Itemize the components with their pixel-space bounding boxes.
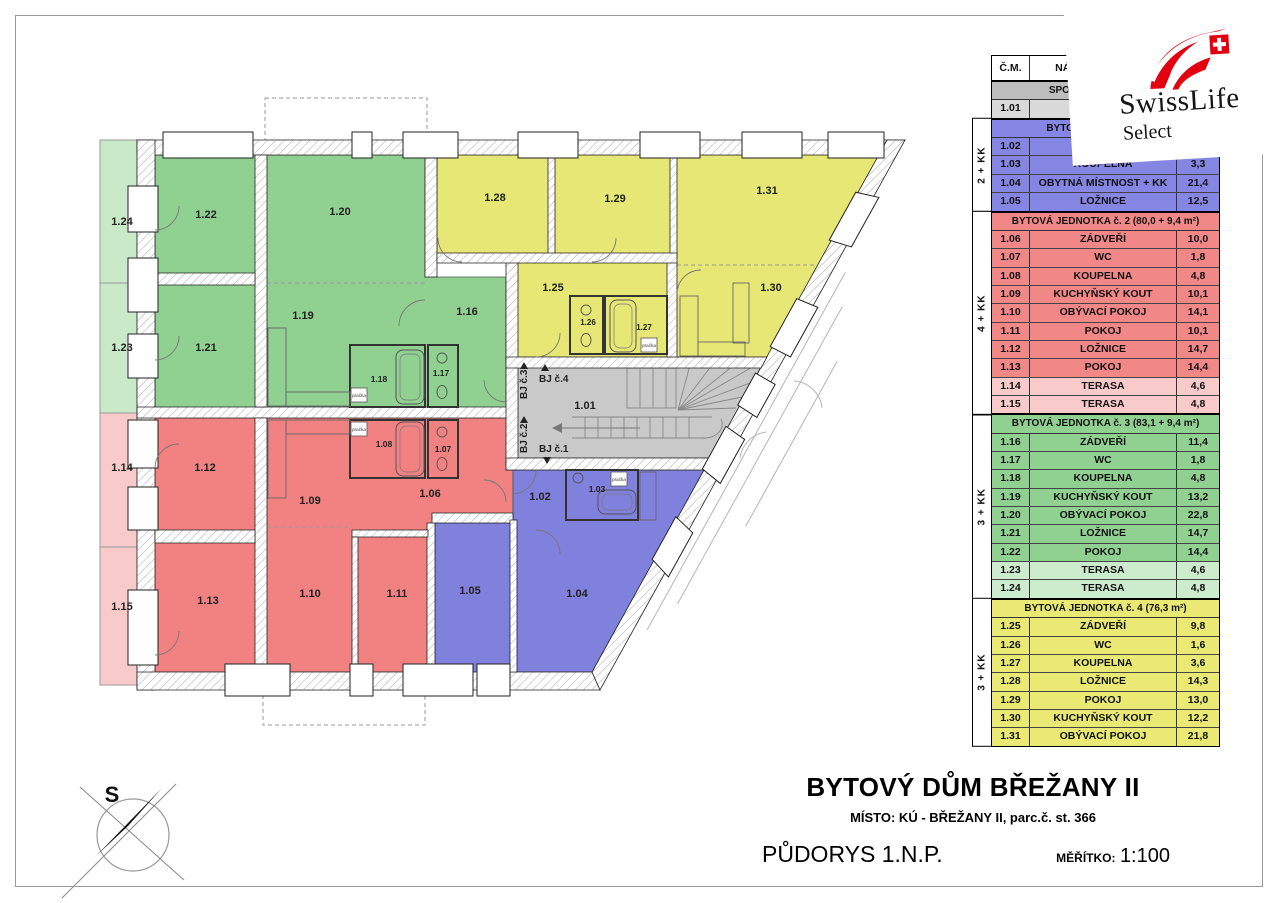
entrance-label-bj4: BJ č.4: [539, 374, 569, 385]
wall: [137, 407, 513, 418]
room-number: 1.25: [992, 618, 1029, 635]
legend-row-1.17: 1.17WC1,8: [992, 452, 1219, 470]
room-name: LOŽNICE: [1029, 193, 1177, 210]
room-number: 1.18: [992, 470, 1029, 487]
legend-section-unit-3: 3 + KKBYTOVÁ JEDNOTKA č. 3 (83,1 + 9,4 m…: [991, 414, 1220, 598]
legend-row-1.08: 1.08KOUPELNA4,8: [992, 268, 1219, 286]
room-number: 1.01: [992, 100, 1029, 117]
room-name: KUCHYŇSKÝ KOUT: [1029, 710, 1177, 727]
legend-col-cm: Č.M.: [992, 56, 1029, 80]
room-area: 14,7: [1177, 525, 1219, 542]
room-name: LOŽNICE: [1029, 525, 1177, 542]
room-name: POKOJ: [1029, 359, 1177, 376]
window-opening: [128, 420, 158, 468]
room-number: 1.29: [992, 692, 1029, 709]
room-number: 1.24: [992, 580, 1029, 597]
room-area: 21,4: [1177, 175, 1219, 192]
window-opening: [640, 132, 700, 158]
wall: [506, 458, 714, 470]
wall: [155, 530, 255, 543]
title-block: BYTOVÝ DŮM BŘEŽANY II MÍSTO: KÚ - BŘEŽAN…: [748, 772, 1198, 868]
wall: [510, 520, 517, 672]
room-number: 1.13: [992, 359, 1029, 376]
room-label-1.29: 1.29: [604, 193, 625, 205]
room-area: 1,6: [1177, 637, 1219, 654]
wall: [352, 537, 358, 672]
legend-row-1.05: 1.05LOŽNICE12,5: [992, 193, 1219, 210]
room-label-1.11: 1.11: [387, 588, 408, 600]
room-area: 4,8: [1177, 580, 1219, 597]
drawing-sheet: pračkapračkapračkapračka 1.011.021.031.0…: [0, 0, 1279, 903]
room-label-1.30: 1.30: [760, 282, 781, 294]
room-label-1.08: 1.08: [376, 439, 393, 449]
legend-row-1.25: 1.25ZÁDVEŘÍ9,8: [992, 618, 1219, 636]
room-label-1.01: 1.01: [574, 400, 595, 412]
scale-label: MĚŘÍTKO:: [1056, 851, 1115, 865]
washer-label: pračka: [352, 427, 366, 432]
room-area: 14,1: [1177, 304, 1219, 321]
room-area: 4,8: [1177, 396, 1219, 413]
entrance-label-bj3: BJ č.3: [519, 369, 530, 399]
room-area: 4,6: [1177, 378, 1219, 395]
room-label-1.13: 1.13: [197, 595, 218, 607]
legend-row-1.04: 1.04OBYTNÁ MÍSTNOST + KK21,4: [992, 175, 1219, 193]
room-name: POKOJ: [1029, 692, 1177, 709]
window-opening: [403, 664, 473, 696]
room-label-1.31: 1.31: [756, 185, 777, 197]
window-opening: [163, 132, 253, 158]
room-number: 1.20: [992, 507, 1029, 524]
legend-row-1.18: 1.18KOUPELNA4,8: [992, 470, 1219, 488]
legend-side-unit-3: 3 + KK: [972, 414, 992, 599]
legend-section-unit-2: 4 + KKBYTOVÁ JEDNOTKA č. 2 (80,0 + 9,4 m…: [991, 212, 1220, 415]
room-area: 4,6: [1177, 562, 1219, 579]
room-name: KOUPELNA: [1029, 470, 1177, 487]
legend-row-1.10: 1.10OBÝVACÍ POKOJ14,1: [992, 304, 1219, 322]
legend-row-1.19: 1.19KUCHYŇSKÝ KOUT13,2: [992, 489, 1219, 507]
wall: [432, 513, 513, 523]
room-number: 1.21: [992, 525, 1029, 542]
exterior-door-arc: [794, 381, 822, 408]
legend-row-1.16: 1.16ZÁDVEŘÍ11,4: [992, 434, 1219, 452]
room-label-1.24: 1.24: [111, 216, 133, 228]
legend-row-1.27: 1.27KOUPELNA3,6: [992, 655, 1219, 673]
room-number: 1.05: [992, 193, 1029, 210]
washer-label: pračka: [642, 343, 656, 348]
legend-row-1.21: 1.21LOŽNICE14,7: [992, 525, 1219, 543]
room-number: 1.22: [992, 544, 1029, 561]
room-label-1.27: 1.27: [636, 323, 652, 332]
room-label-1.19: 1.19: [292, 310, 313, 322]
legend-side-unit-1: 2 + KK: [972, 118, 992, 212]
room-number: 1.04: [992, 175, 1029, 192]
wall: [437, 253, 677, 263]
room-label-1.21: 1.21: [195, 342, 216, 354]
wall: [255, 418, 267, 672]
legend-section-title: BYTOVÁ JEDNOTKA č. 4 (76,3 m²): [992, 600, 1219, 618]
room-label-1.02: 1.02: [529, 491, 550, 503]
room-area: 9,8: [1177, 618, 1219, 635]
room-number: 1.09: [992, 286, 1029, 303]
legend-row-1.30: 1.30KUCHYŇSKÝ KOUT12,2: [992, 710, 1219, 728]
room-area: 14,7: [1177, 341, 1219, 358]
legend-row-1.06: 1.06ZÁDVEŘÍ10,0: [992, 231, 1219, 249]
room-label-1.04: 1.04: [566, 588, 588, 600]
room-name: KOUPELNA: [1029, 655, 1177, 672]
window-opening: [518, 132, 578, 158]
room-number: 1.02: [992, 138, 1029, 155]
room-area: 11,4: [1177, 434, 1219, 451]
room-name: TERASA: [1029, 378, 1177, 395]
room-name: KUCHYŇSKÝ KOUT: [1029, 286, 1177, 303]
room-label-1.22: 1.22: [195, 209, 216, 221]
legend-row-1.29: 1.29POKOJ13,0: [992, 692, 1219, 710]
room-number: 1.03: [992, 156, 1029, 173]
room-number: 1.12: [992, 341, 1029, 358]
washer-label: pračka: [352, 393, 366, 398]
washer-label: pračka: [612, 477, 626, 482]
room-number: 1.17: [992, 452, 1029, 469]
room-name: POKOJ: [1029, 544, 1177, 561]
room-area: 14,4: [1177, 359, 1219, 376]
legend-row-1.26: 1.26WC1,6: [992, 637, 1219, 655]
room-name: ZÁDVEŘÍ: [1029, 231, 1177, 248]
project-title: BYTOVÝ DŮM BŘEŽANY II: [748, 772, 1198, 803]
room-number: 1.08: [992, 268, 1029, 285]
room-name: WC: [1029, 637, 1177, 654]
room-name: WC: [1029, 452, 1177, 469]
logo-product-text: Select: [1122, 120, 1172, 146]
window-opening: [128, 334, 158, 378]
room-label-1.20: 1.20: [329, 206, 350, 218]
logo-brand-text: SwissLife: [1118, 82, 1240, 122]
room-label-1.23: 1.23: [111, 342, 132, 354]
room-number: 1.19: [992, 489, 1029, 506]
north-compass: S: [62, 782, 184, 898]
legend-row-1.31: 1.31OBÝVACÍ POKOJ21,8: [992, 728, 1219, 745]
room-name: LOŽNICE: [1029, 673, 1177, 690]
room-area: 13,0: [1177, 692, 1219, 709]
legend-row-1.14: 1.14TERASA4,6: [992, 378, 1219, 396]
room-number: 1.16: [992, 434, 1029, 451]
room-name: OBYTNÁ MÍSTNOST + KK: [1029, 175, 1177, 192]
room-name: OBÝVACÍ POKOJ: [1029, 507, 1177, 524]
room-area: 1,8: [1177, 249, 1219, 266]
legend-row-1.28: 1.28LOŽNICE14,3: [992, 673, 1219, 691]
legend-section-title: BYTOVÁ JEDNOTKA č. 3 (83,1 + 9,4 m²): [992, 415, 1219, 433]
room-name: LOŽNICE: [1029, 341, 1177, 358]
window-opening: [403, 132, 458, 158]
room-label-1.10: 1.10: [299, 588, 320, 600]
room-area: 10,1: [1177, 286, 1219, 303]
room-label-1.15: 1.15: [111, 601, 132, 613]
room-name: TERASA: [1029, 562, 1177, 579]
window-opening: [350, 664, 373, 696]
wall: [427, 523, 435, 672]
room-label-1.06: 1.06: [419, 488, 440, 500]
legend-row-1.11: 1.11POKOJ10,1: [992, 323, 1219, 341]
wall: [548, 155, 555, 257]
legend-section-title: BYTOVÁ JEDNOTKA č. 2 (80,0 + 9,4 m²): [992, 213, 1219, 231]
legend-side-unit-4: 3 + KK: [972, 598, 992, 747]
legend-row-1.07: 1.07WC1,8: [992, 249, 1219, 267]
window-opening: [128, 258, 158, 312]
legend-row-1.09: 1.09KUCHYŇSKÝ KOUT10,1: [992, 286, 1219, 304]
room-label-1.28: 1.28: [484, 192, 505, 204]
room-label-1.14: 1.14: [111, 462, 133, 474]
room-label-1.05: 1.05: [459, 585, 480, 597]
room-area: 22,8: [1177, 507, 1219, 524]
room-label-1.07: 1.07: [435, 444, 452, 454]
room-number: 1.14: [992, 378, 1029, 395]
scale: MĚŘÍTKO: 1:100: [1056, 845, 1170, 868]
room-name: TERASA: [1029, 580, 1177, 597]
window-opening: [828, 132, 884, 158]
room-number: 1.23: [992, 562, 1029, 579]
room-number: 1.27: [992, 655, 1029, 672]
room-number: 1.28: [992, 673, 1029, 690]
room-area: 12,2: [1177, 710, 1219, 727]
legend-row-1.23: 1.23TERASA4,6: [992, 562, 1219, 580]
room-name: OBÝVACÍ POKOJ: [1029, 304, 1177, 321]
legend-row-1.20: 1.20OBÝVACÍ POKOJ22,8: [992, 507, 1219, 525]
wall: [667, 262, 677, 357]
room-number: 1.11: [992, 323, 1029, 340]
legend-row-1.13: 1.13POKOJ14,4: [992, 359, 1219, 377]
legend-row-1.24: 1.24TERASA4,8: [992, 580, 1219, 597]
company-logo: SwissLife Select: [1064, 1, 1279, 166]
wall: [670, 155, 677, 257]
window-opening: [742, 132, 802, 158]
wall: [425, 155, 437, 277]
room-name: ZÁDVEŘÍ: [1029, 618, 1177, 635]
wall: [352, 530, 428, 537]
legend-section-unit-4: 3 + KKBYTOVÁ JEDNOTKA č. 4 (76,3 m²)1.25…: [991, 599, 1220, 747]
window-opening: [352, 132, 372, 158]
room-area: 1,8: [1177, 452, 1219, 469]
room-area: 10,0: [1177, 231, 1219, 248]
legend-row-1.15: 1.15TERASA4,8: [992, 396, 1219, 413]
window-opening: [225, 664, 290, 696]
wall: [255, 155, 267, 407]
room-label-1.03: 1.03: [589, 484, 606, 494]
exterior-door-arc: [740, 432, 766, 458]
room-label-1.09: 1.09: [299, 495, 320, 507]
scale-value: 1:100: [1120, 845, 1170, 867]
room-number: 1.30: [992, 710, 1029, 727]
room-name: TERASA: [1029, 396, 1177, 413]
room-name: WC: [1029, 249, 1177, 266]
room-label-1.16: 1.16: [456, 306, 477, 318]
room-area: 21,8: [1177, 728, 1219, 745]
room-name: KOUPELNA: [1029, 268, 1177, 285]
room-label-1.26: 1.26: [580, 318, 596, 327]
room-area: 14,4: [1177, 544, 1219, 561]
room-number: 1.31: [992, 728, 1029, 745]
room-name: ZÁDVEŘÍ: [1029, 434, 1177, 451]
room-number: 1.26: [992, 637, 1029, 654]
room-area: 4,8: [1177, 470, 1219, 487]
room-label-1.17: 1.17: [433, 368, 450, 378]
room-label-1.25: 1.25: [542, 282, 563, 294]
room-area: 4,8: [1177, 268, 1219, 285]
room-area: 13,2: [1177, 489, 1219, 506]
room-name: POKOJ: [1029, 323, 1177, 340]
room-label-1.18: 1.18: [371, 374, 388, 384]
window-opening: [477, 664, 510, 696]
room-area: 3,6: [1177, 655, 1219, 672]
room-area: 12,5: [1177, 193, 1219, 210]
legend-row-1.22: 1.22POKOJ14,4: [992, 544, 1219, 562]
legend-row-1.12: 1.12LOŽNICE14,7: [992, 341, 1219, 359]
drawing-name: PŮDORYS 1.N.P.: [762, 841, 943, 868]
room-number: 1.06: [992, 231, 1029, 248]
project-location: MÍSTO: KÚ - BŘEŽANY II, parc.č. st. 366: [748, 810, 1198, 825]
room-area: 10,1: [1177, 323, 1219, 340]
room-number: 1.07: [992, 249, 1029, 266]
entrance-label-bj2: BJ č.2: [519, 423, 530, 453]
room-name: KUCHYŇSKÝ KOUT: [1029, 489, 1177, 506]
window-opening: [128, 487, 158, 530]
room-name: OBÝVACÍ POKOJ: [1029, 728, 1177, 745]
room-label-1.12: 1.12: [194, 462, 215, 474]
entrance-label-bj1: BJ č.1: [539, 444, 569, 455]
room-number: 1.10: [992, 304, 1029, 321]
legend-side-unit-2: 4 + KK: [972, 211, 992, 415]
room-area: 14,3: [1177, 673, 1219, 690]
wall: [155, 273, 255, 285]
compass-north-letter: S: [105, 782, 120, 807]
room-number: 1.15: [992, 396, 1029, 413]
